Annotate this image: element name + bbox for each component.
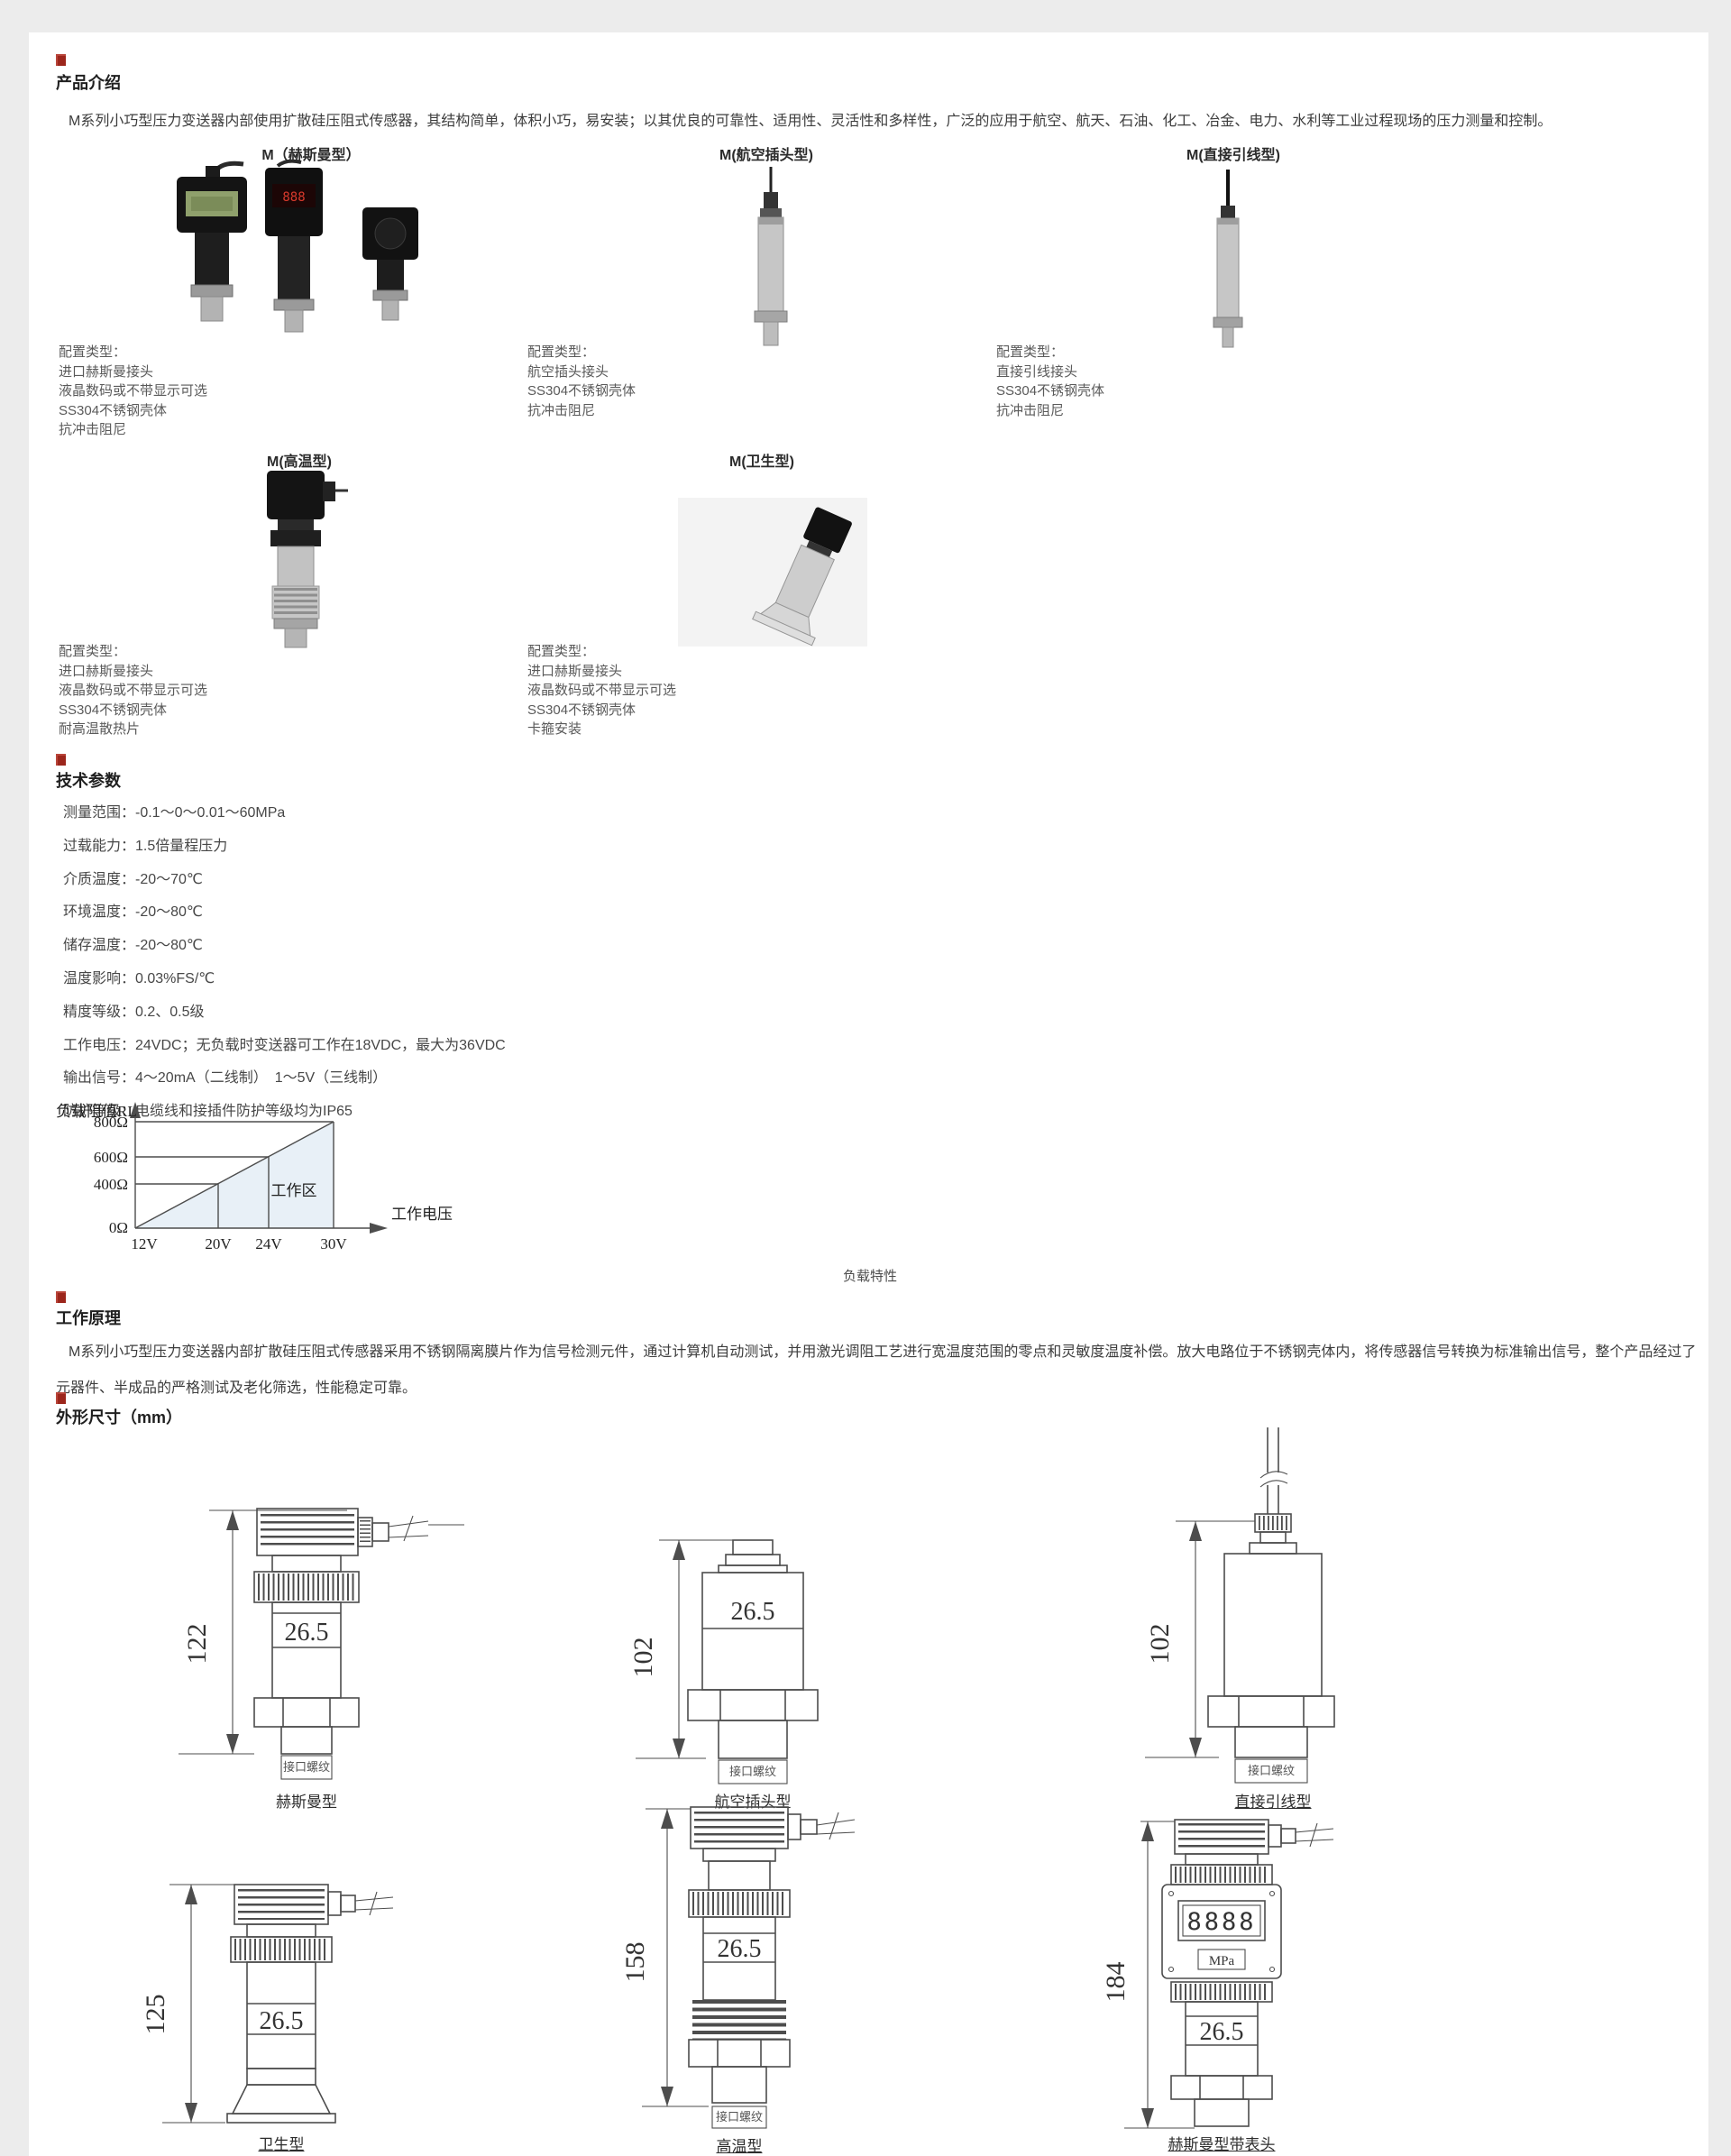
config-line: 配置类型：	[527, 642, 676, 662]
chart-ytick-800: 800Ω	[94, 1114, 128, 1131]
dim-arrow-up	[661, 1809, 673, 1829]
display-head: 8888 MPa	[1162, 1885, 1281, 1978]
thread-callout: 接口螺纹	[1235, 1759, 1307, 1783]
thread-label: 接口螺纹	[729, 1765, 776, 1778]
config-line: 进口赫斯曼接头	[59, 662, 207, 682]
config-line: SS304不锈钢壳体	[59, 701, 207, 720]
dim-arrow-up	[1189, 1521, 1202, 1541]
connector-neck	[272, 1555, 341, 1572]
triclamp-flare	[227, 2069, 335, 2123]
knurled-nut-top	[1171, 1865, 1272, 1885]
aviation-plug	[719, 1540, 787, 1573]
drawing-caption-hersman: 赫斯曼型	[276, 1789, 337, 1812]
dim-height-label: 102	[628, 1638, 658, 1678]
transmitter-body: 26.5	[247, 1962, 316, 2069]
config-line: 进口赫斯曼接头	[59, 362, 207, 382]
drawing-hersman-display: 8888 MPa 26.5 184	[1113, 1814, 1537, 2132]
dim-height-label: 122	[182, 1624, 212, 1665]
section-anchor-icon	[56, 1291, 66, 1303]
display-unit-label: MPa	[1209, 1954, 1235, 1968]
thread-label: 接口螺纹	[283, 1760, 330, 1774]
tech-param: 介质温度：-20～70℃	[63, 864, 506, 897]
config-line: 卡箍安装	[527, 720, 676, 739]
config-list-aviation: 配置类型： 航空插头接头 SS304不锈钢壳体 抗冲击阻尼	[527, 343, 636, 420]
thread-stub	[281, 1727, 332, 1754]
dim-arrow-down	[661, 2087, 673, 2106]
config-line: SS304不锈钢壳体	[527, 701, 676, 720]
cable	[1260, 1427, 1287, 1514]
chart-xtick-20v: 20V	[205, 1235, 232, 1252]
drawing-hightemp: 26.5 158 接口螺纹	[622, 1802, 965, 2133]
hirschmann-connector	[1175, 1820, 1333, 1854]
cable-gland	[1250, 1514, 1296, 1554]
svg-text:888: 888	[282, 190, 305, 205]
config-list-sanitary: 配置类型： 进口赫斯曼接头 液晶数码或不带显示可选 SS304不锈钢壳体 卡箍安…	[527, 642, 676, 739]
thread-stub	[1195, 2099, 1249, 2126]
body-width-label: 26.5	[285, 1619, 329, 1647]
principle-paragraph: M系列小巧型压力变送器内部扩散硅压阻式传感器采用不锈钢隔离膜片作为信号检测元件，…	[56, 1335, 1700, 1407]
chart-ytick-0: 0Ω	[109, 1219, 128, 1236]
body-width-label: 26.5	[718, 1935, 762, 1963]
thread-stub	[719, 1720, 787, 1758]
transmitter-body: 26.5	[702, 1573, 803, 1690]
config-line: SS304不锈钢壳体	[527, 381, 636, 401]
body-width-label: 26.5	[731, 1598, 775, 1626]
dim-arrow-down	[673, 1739, 685, 1758]
hex-nut	[1208, 1696, 1334, 1727]
tech-param: 过载能力：1.5倍量程压力	[63, 830, 506, 864]
body-width-label: 26.5	[260, 2007, 304, 2035]
intro-paragraph: M系列小巧型压力变送器内部使用扩散硅压阻式传感器，其结构简单，体积小巧，易安装；…	[56, 108, 1688, 130]
dim-arrow-up	[185, 1885, 197, 1904]
intro-heading: 产品介绍	[56, 70, 121, 94]
config-list-hersman: 配置类型： 进口赫斯曼接头 液晶数码或不带显示可选 SS304不锈钢壳体 抗冲击…	[59, 343, 207, 440]
connector-neck	[247, 1924, 316, 1937]
chart-ytick-400: 400Ω	[94, 1176, 128, 1193]
drawing-hersman: 122 26.5 接口螺纹	[153, 1492, 532, 1803]
dim-arrow-down	[1141, 2108, 1154, 2128]
thread-stub	[1235, 1727, 1307, 1757]
chart-xtick-30v: 30V	[320, 1235, 347, 1252]
knurled-nut	[231, 1937, 332, 1962]
config-line: 液晶数码或不带显示可选	[527, 681, 676, 701]
principle-heading: 工作原理	[56, 1306, 121, 1329]
product-photo-aviation	[726, 167, 816, 356]
config-list-directlead: 配置类型： 直接引线接头 SS304不锈钢壳体 抗冲击阻尼	[996, 343, 1104, 420]
config-line: SS304不锈钢壳体	[59, 401, 207, 421]
config-line: 抗冲击阻尼	[59, 420, 207, 440]
display-digits: 8888	[1186, 1908, 1256, 1936]
dim-arrow-down	[1189, 1738, 1202, 1757]
dim-arrow-up	[1141, 1821, 1154, 1841]
connector-collar	[709, 1861, 770, 1890]
knurled-nut	[254, 1572, 359, 1602]
config-line: 配置类型：	[996, 343, 1104, 362]
load-chart: 负载阻值RL 800Ω 600Ω 400Ω 0Ω 12V 20V 24V 30V…	[52, 1102, 485, 1269]
chart-x-arrow	[370, 1223, 388, 1234]
chart-xtick-12v: 12V	[131, 1235, 158, 1252]
dim-extension-lines	[1124, 1821, 1195, 2128]
drawing-aviation: 102 26.5 接口螺纹	[609, 1531, 906, 1788]
section-anchor-icon	[56, 754, 66, 766]
tech-param: 输出信号：4～20mA（二线制） 1～5V（三线制）	[63, 1062, 506, 1096]
dimensions-heading: 外形尺寸（mm）	[56, 1405, 182, 1428]
chart-ytick-600: 600Ω	[94, 1149, 128, 1166]
thread-stub	[712, 2067, 766, 2103]
product-title-directlead: M(直接引线型)	[1186, 142, 1280, 164]
connector-neck	[703, 1849, 775, 1861]
transmitter-body	[1224, 1554, 1322, 1696]
config-line: 液晶数码或不带显示可选	[59, 381, 207, 401]
hirschmann-connector	[234, 1885, 393, 1924]
tech-param: 精度等级：0.2、0.5级	[63, 996, 506, 1030]
drawing-directlead: 102 接口螺纹	[1118, 1427, 1424, 1788]
product-title-sanitary: M(卫生型)	[729, 449, 794, 471]
config-line: 直接引线接头	[996, 362, 1104, 382]
drawing-caption-hightemp: 高温型	[717, 2133, 763, 2156]
knurled-nut	[689, 1890, 790, 1917]
config-line: SS304不锈钢壳体	[996, 381, 1104, 401]
document-page: { "page": {"bg": "#ececec", "content_bg"…	[0, 0, 1731, 2156]
drawing-sanitary: 26.5 125	[135, 1881, 460, 2132]
thread-label: 接口螺纹	[716, 2110, 763, 2124]
hex-nut	[689, 2040, 790, 2067]
hirschmann-connector	[257, 1509, 464, 1555]
product-title-aviation: M(航空插头型)	[719, 142, 813, 164]
thread-callout: 接口螺纹	[719, 1760, 787, 1784]
dim-height-label: 125	[141, 1995, 170, 2035]
config-list-hightemp: 配置类型： 进口赫斯曼接头 液晶数码或不带显示可选 SS304不锈钢壳体 耐高温…	[59, 642, 207, 739]
dim-height-label: 158	[620, 1942, 650, 1983]
section-anchor-icon	[56, 1392, 66, 1404]
dim-height-label: 184	[1101, 1962, 1131, 2003]
thread-callout: 接口螺纹	[712, 2106, 766, 2128]
tech-param: 测量范围：-0.1～0～0.01～60MPa	[63, 797, 506, 830]
dim-extension-lines	[162, 1885, 234, 2123]
config-line: 进口赫斯曼接头	[527, 662, 676, 682]
product-photo-hersman: 888	[171, 161, 442, 350]
product-photo-directlead	[1192, 170, 1264, 359]
knurled-nut-bottom	[1171, 1982, 1272, 2002]
chart-caption: 负载特性	[843, 1266, 897, 1285]
thread-label: 接口螺纹	[1248, 1764, 1295, 1777]
chart-xtick-24v: 24V	[255, 1235, 282, 1252]
config-line: 液晶数码或不带显示可选	[59, 681, 207, 701]
chart-x-axis-label: 工作电压	[391, 1206, 453, 1223]
tech-heading: 技术参数	[56, 768, 121, 792]
drawing-caption-directlead: 直接引线型	[1235, 1789, 1312, 1812]
config-line: 抗冲击阻尼	[527, 401, 636, 421]
tech-param: 工作电压：24VDC；无负载时变送器可工作在18VDC，最大为36VDC	[63, 1030, 506, 1063]
dim-arrow-down	[226, 1734, 239, 1754]
product-title-hightemp: M(高温型)	[267, 449, 332, 471]
tech-param: 储存温度：-20～80℃	[63, 930, 506, 963]
config-line: 抗冲击阻尼	[996, 401, 1104, 421]
config-line: 航空插头接头	[527, 362, 636, 382]
config-line: 耐高温散热片	[59, 720, 207, 739]
transmitter-body: 26.5	[272, 1602, 341, 1698]
dim-extension-lines	[642, 1809, 709, 2106]
hex-nut	[688, 1690, 818, 1720]
transmitter-body: 26.5	[1186, 2002, 1258, 2076]
config-line: 配置类型：	[527, 343, 636, 362]
dim-arrow-up	[226, 1510, 239, 1530]
tech-params: 测量范围：-0.1～0～0.01～60MPa 过载能力：1.5倍量程压力 介质温…	[63, 797, 506, 1129]
hex-nut	[1171, 2076, 1272, 2099]
tech-param: 环境温度：-20～80℃	[63, 896, 506, 930]
drawing-caption-hersman-display: 赫斯曼型带表头	[1168, 2132, 1276, 2154]
chart-region-label: 工作区	[271, 1182, 317, 1199]
config-line: 配置类型：	[59, 642, 207, 662]
hirschmann-connector	[691, 1807, 855, 1849]
section-anchor-icon	[56, 54, 66, 66]
transmitter-body: 26.5	[703, 1917, 775, 2000]
connector-neck	[1186, 1854, 1258, 1865]
dim-height-label: 102	[1145, 1624, 1175, 1665]
drawing-caption-sanitary: 卫生型	[259, 2132, 305, 2154]
product-photo-sanitary	[678, 498, 867, 647]
tech-param: 温度影响：0.03%FS/℃	[63, 963, 506, 996]
dim-arrow-up	[673, 1540, 685, 1560]
product-photo-hightemp	[251, 469, 350, 649]
dim-arrow-down	[185, 2103, 197, 2123]
body-width-label: 26.5	[1200, 2018, 1244, 2046]
config-line: 配置类型：	[59, 343, 207, 362]
hex-nut	[254, 1698, 359, 1727]
thread-callout: 接口螺纹	[281, 1756, 332, 1779]
